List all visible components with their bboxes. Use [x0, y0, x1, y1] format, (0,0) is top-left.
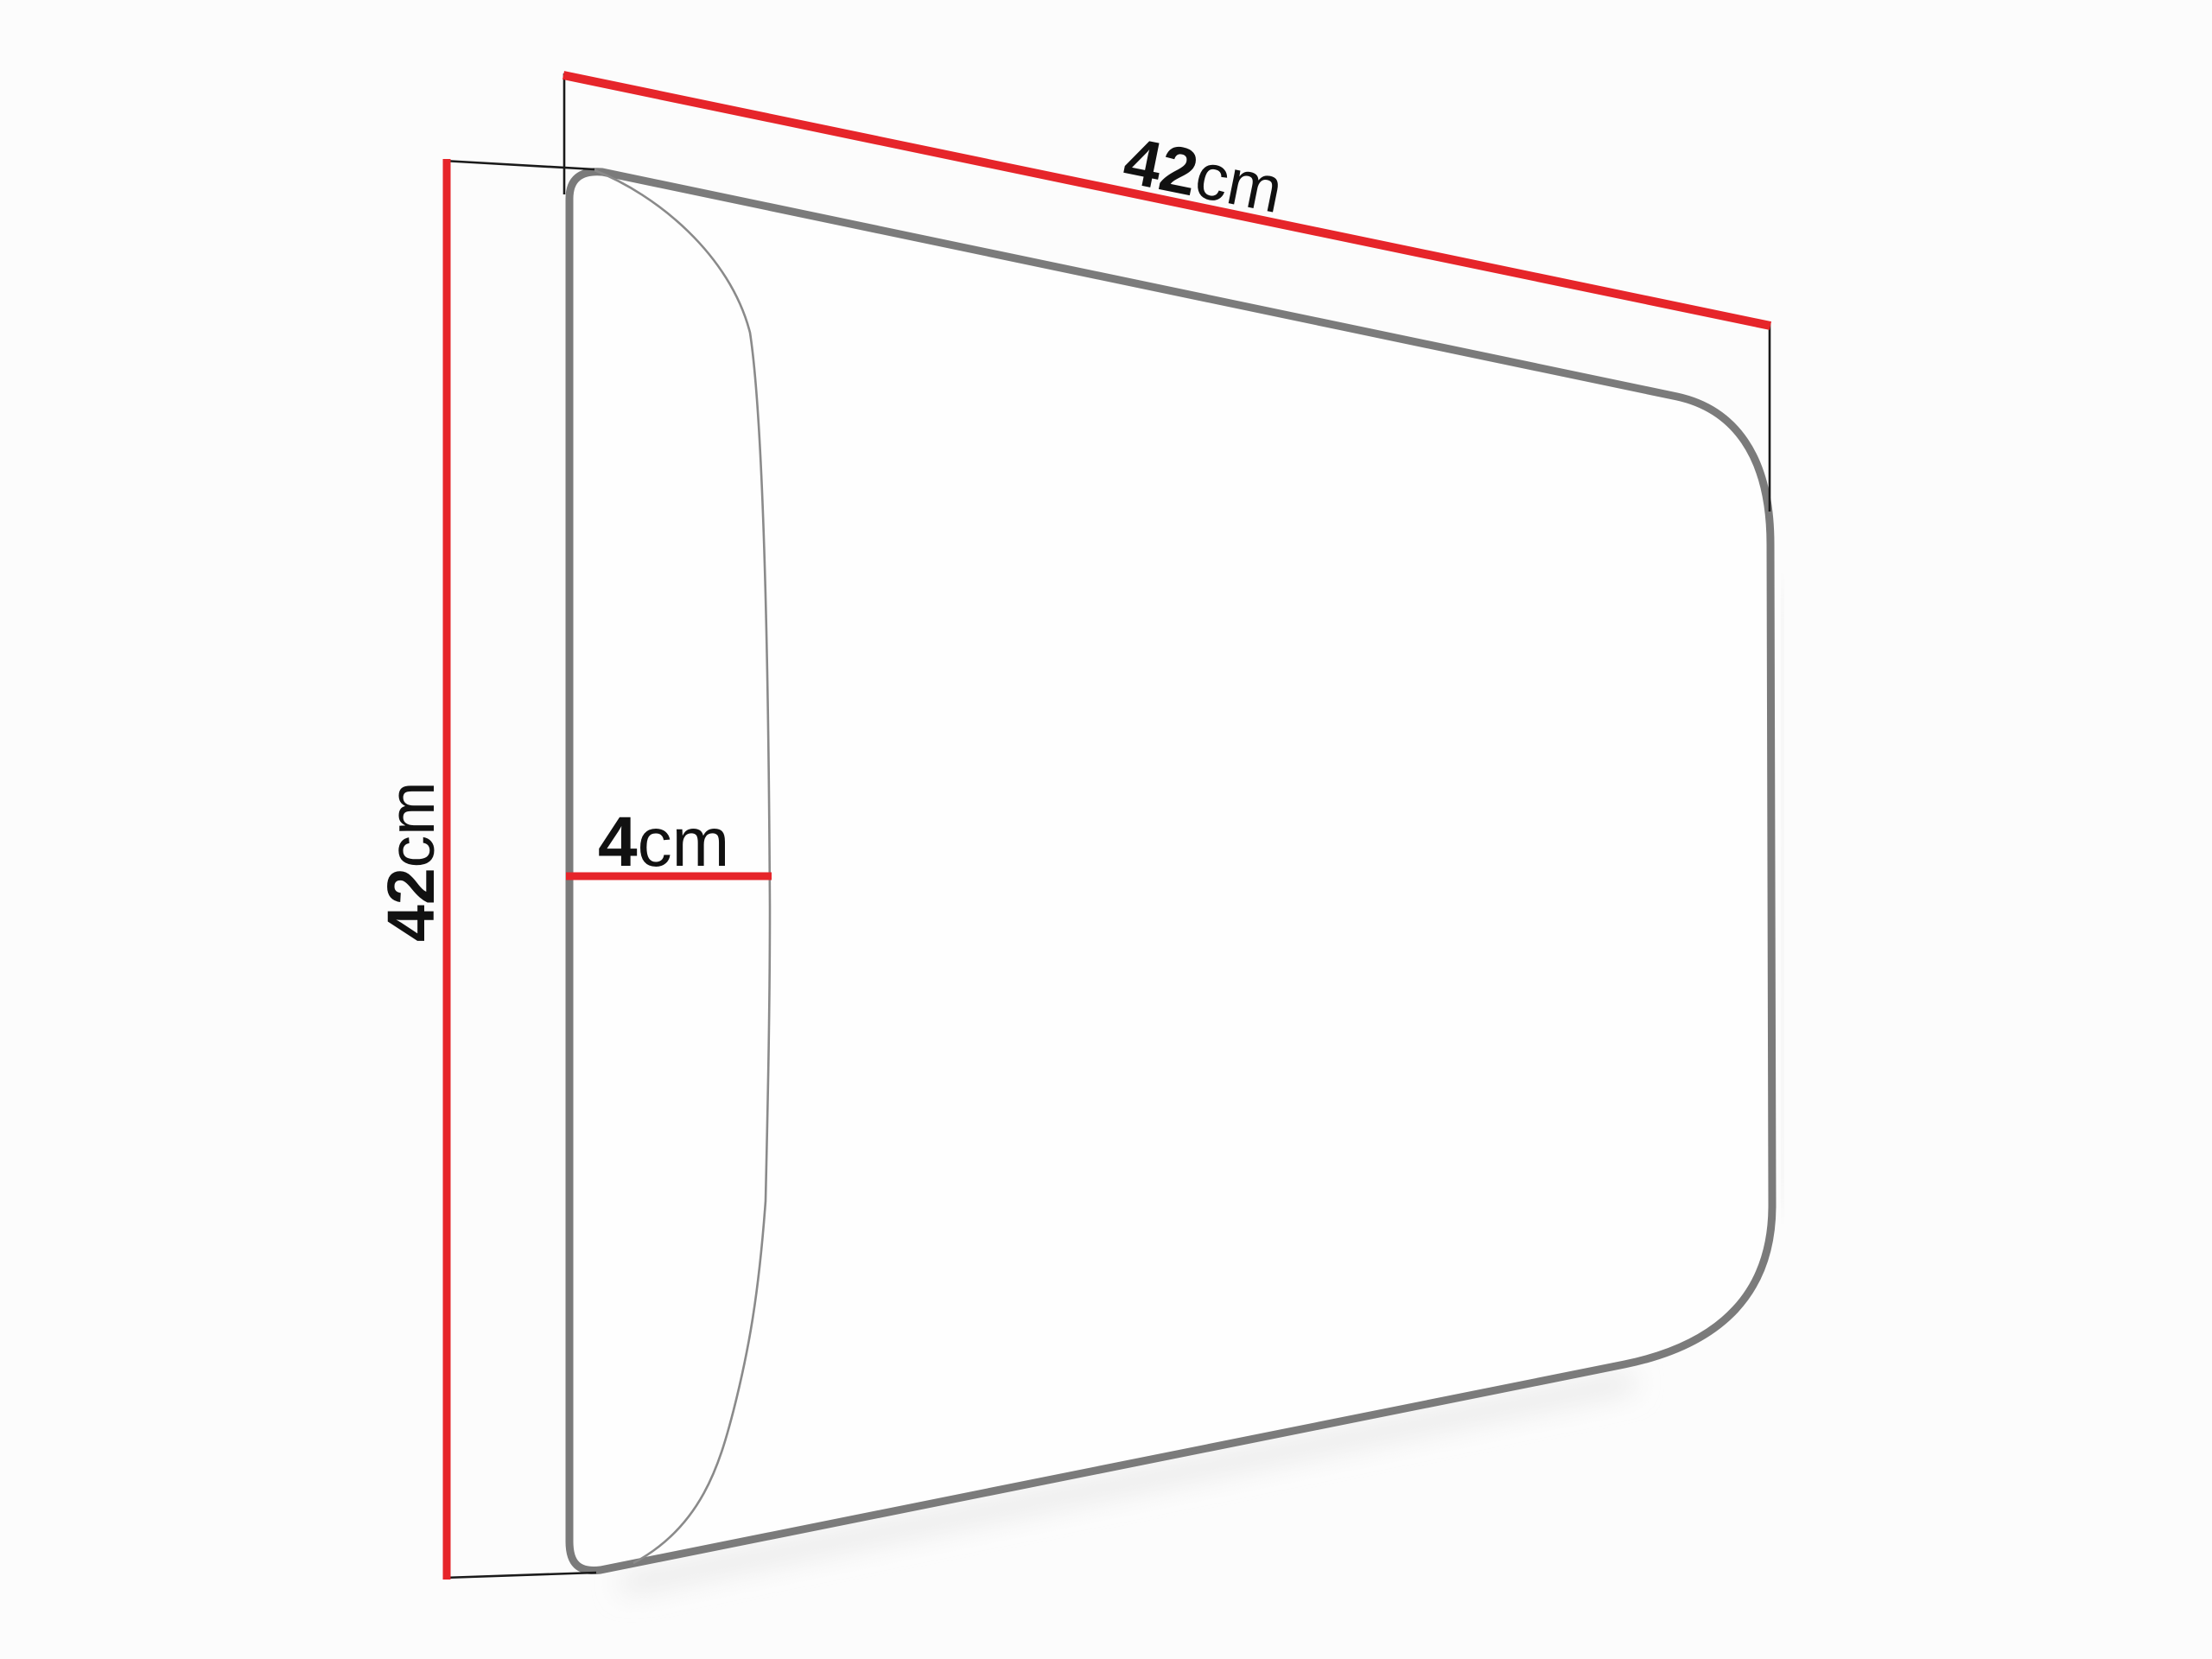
- svg-text:42cm: 42cm: [374, 781, 448, 942]
- svg-text:4cm: 4cm: [598, 803, 729, 881]
